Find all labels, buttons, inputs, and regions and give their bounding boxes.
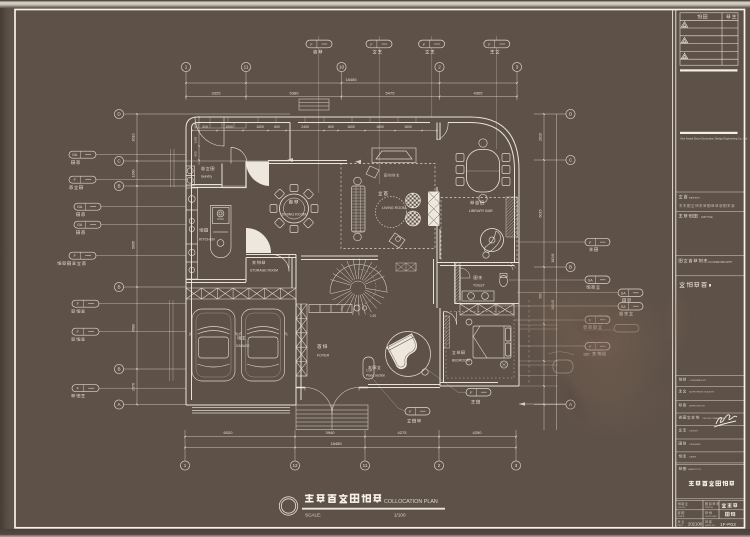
svg-text:1500: 1500: [256, 125, 264, 129]
svg-text:600: 600: [328, 125, 334, 129]
svg-text:1600: 1600: [376, 125, 384, 129]
svg-text:DAWN NO.: DAWN NO.: [705, 524, 716, 527]
svg-text:JOB TITLE: JOB TITLE: [701, 216, 713, 219]
svg-text:1600: 1600: [404, 125, 412, 129]
svg-text:16245: 16245: [551, 253, 555, 262]
svg-text:1: 1: [184, 463, 187, 468]
svg-text:2400: 2400: [301, 125, 309, 129]
svg-text:AUTHORIZED ISSUE BY: AUTHORIZED ISSUE BY: [689, 391, 714, 394]
svg-text:GA: GA: [72, 153, 78, 157]
svg-text:LIBRARY BAR: LIBRARY BAR: [469, 209, 493, 213]
svg-text:2: 2: [438, 463, 441, 468]
svg-text:2610: 2610: [132, 134, 136, 142]
svg-text:Piano section: Piano section: [366, 374, 385, 378]
svg-text:JOB NO.: JOB NO.: [678, 507, 687, 509]
svg-text:202106: 202106: [688, 522, 703, 527]
svg-text:600: 600: [194, 151, 198, 156]
svg-text:1/100: 1/100: [394, 513, 406, 518]
svg-text:KITCHEN: KITCHEN: [199, 238, 215, 242]
svg-text:5380: 5380: [290, 91, 300, 96]
svg-text:laundry: laundry: [201, 175, 212, 179]
svg-text:11: 11: [244, 65, 249, 70]
svg-text:DESIGNED: DESIGNED: [689, 444, 701, 446]
svg-text:GA: GA: [77, 205, 83, 209]
svg-text:APPROVED BY: APPROVED BY: [689, 405, 705, 408]
svg-text:4250: 4250: [473, 430, 483, 435]
svg-text:DESIGN: DESIGN: [689, 431, 698, 433]
svg-text:1:04: 1:04: [366, 369, 372, 373]
svg-text:B: B: [569, 265, 572, 270]
svg-text:1390: 1390: [132, 170, 136, 178]
svg-text:3: 3: [516, 65, 519, 70]
svg-text:1F-P03: 1F-P03: [720, 522, 736, 528]
svg-text:B: B: [117, 367, 120, 372]
svg-text:SCALE:: SCALE:: [305, 513, 321, 518]
svg-text:FOYER: FOYER: [317, 354, 330, 358]
svg-text:18485: 18485: [345, 77, 357, 82]
svg-text:1500: 1500: [225, 125, 233, 129]
svg-text:315: 315: [202, 125, 208, 129]
svg-text:600: 600: [194, 123, 198, 128]
svg-text:5695: 5695: [132, 241, 136, 249]
svg-text:Xian Award Decor Decoration De: Xian Award Decor Decoration Design Engin…: [680, 137, 748, 141]
svg-text:1: 1: [185, 65, 188, 70]
svg-text:DATE: DATE: [678, 524, 684, 527]
svg-text:10: 10: [339, 65, 345, 70]
svg-text:3325: 3325: [212, 91, 222, 96]
svg-text:1260: 1260: [194, 136, 198, 143]
svg-text:4275: 4275: [398, 430, 408, 435]
svg-text:1970: 1970: [132, 383, 136, 391]
svg-text:1:20: 1:20: [370, 314, 376, 318]
svg-text:SCALE: SCALE: [678, 515, 685, 518]
svg-text:11: 11: [363, 463, 368, 468]
svg-text:GA: GA: [77, 223, 83, 227]
svg-text:B: B: [117, 184, 120, 189]
svg-text:2: 2: [438, 65, 441, 70]
svg-text:2610: 2610: [539, 133, 543, 141]
svg-text:1600: 1600: [347, 125, 355, 129]
svg-text:12: 12: [292, 463, 298, 468]
svg-text:COLLOCATION PLAN: COLLOCATION PLAN: [384, 499, 438, 505]
svg-text:statement: statement: [689, 197, 700, 200]
svg-text:GARAGE: GARAGE: [236, 344, 250, 348]
svg-text:CONFIRMED BY: CONFIRMED BY: [689, 380, 706, 382]
svg-text:LIVING ROOM: LIVING ROOM: [382, 206, 406, 210]
svg-text:CO-OPERATED WITH: CO-OPERATED WITH: [708, 261, 732, 264]
svg-text:4305: 4305: [474, 91, 484, 96]
svg-text:STATUS: STATUS: [705, 506, 714, 509]
svg-text:3940: 3940: [326, 430, 336, 435]
svg-text:4580: 4580: [132, 324, 136, 332]
svg-text:6020: 6020: [224, 430, 234, 435]
svg-text:TOILET: TOILET: [473, 284, 485, 288]
svg-text:B: B: [117, 285, 120, 290]
svg-text:5475: 5475: [386, 91, 396, 96]
svg-text:DAWN: DAWN: [689, 456, 696, 459]
svg-text:18485: 18485: [330, 441, 342, 446]
svg-text:3: 3: [515, 463, 518, 468]
svg-text:DAWN TITLE: DAWN TITLE: [688, 468, 702, 471]
svg-text:6015: 6015: [539, 210, 543, 218]
svg-text:DINING ROOM: DINING ROOM: [282, 213, 307, 217]
svg-text:600: 600: [274, 125, 280, 129]
svg-text:BEDROOM: BEDROOM: [452, 359, 470, 363]
svg-text:DISCIPLINE: DISCIPLINE: [705, 516, 717, 518]
svg-text:STORAGE ROOM: STORAGE ROOM: [250, 269, 278, 273]
